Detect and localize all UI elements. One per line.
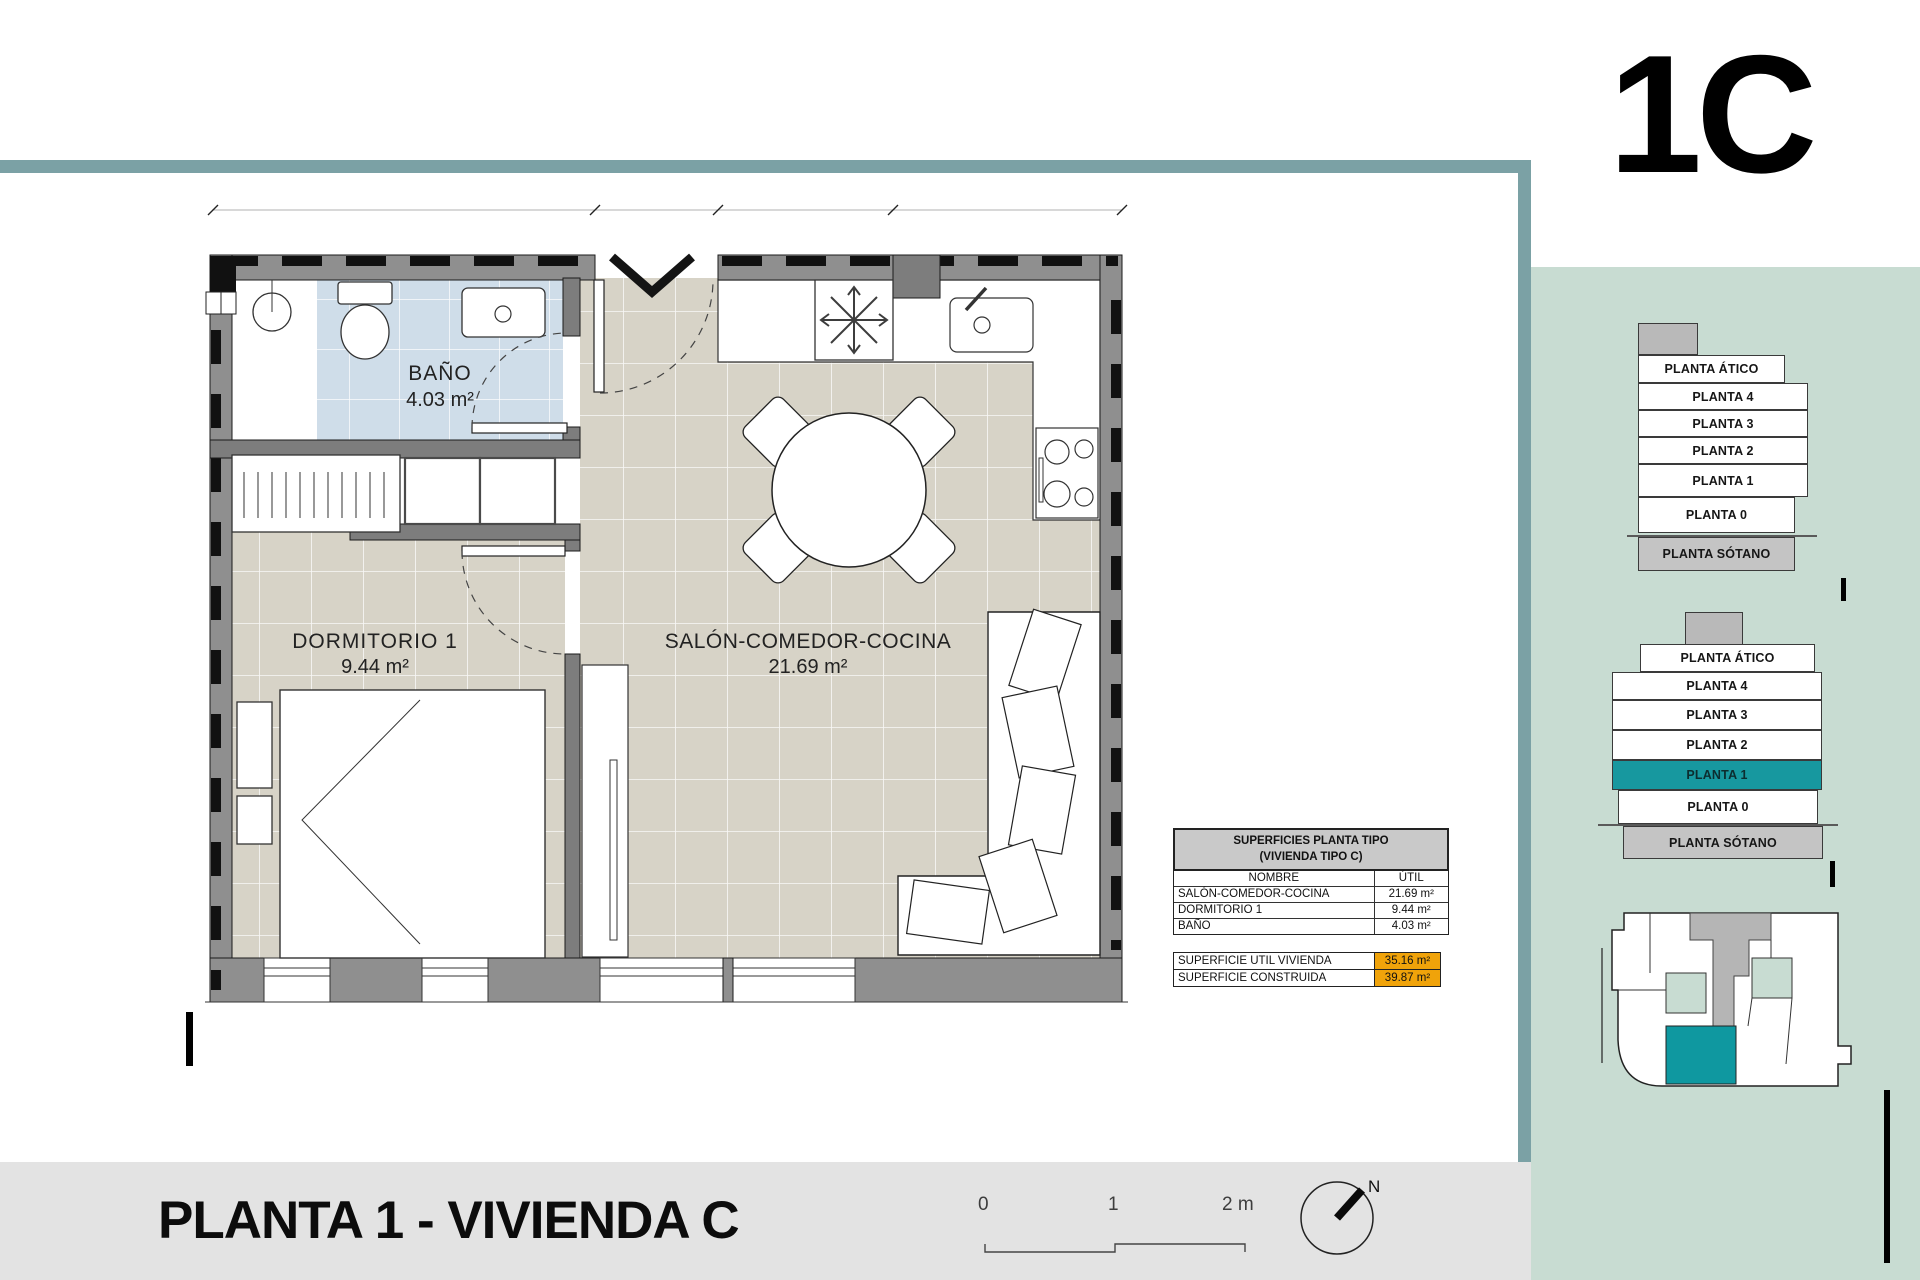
- bedroom-furniture: [237, 690, 545, 958]
- other-unit: [1666, 973, 1706, 1013]
- room-area-bano: 4.03 m²: [406, 389, 474, 411]
- stack2-level-3: PLANTA 3: [1612, 700, 1822, 730]
- total-name: SUPERFICIE CONSTRUIDA: [1173, 969, 1375, 987]
- col-header-util: ÚTIL: [1375, 871, 1448, 886]
- row-value: 9.44 m²: [1375, 902, 1448, 918]
- scale-label-1: 1: [1108, 1194, 1119, 1216]
- total-row: SUPERFICIE CONSTRUIDA 39.87 m²: [1173, 969, 1449, 987]
- row-value: 4.03 m²: [1375, 918, 1448, 934]
- frame-vertical-bar: [1518, 160, 1531, 1280]
- col-header-nombre: NOMBRE: [1174, 871, 1375, 886]
- stack1-level-0: PLANTA 0: [1638, 497, 1795, 533]
- tick-mark: [1830, 861, 1835, 887]
- stack2-level-sotano: PLANTA SÓTANO: [1623, 826, 1823, 859]
- surfaces-table-header: SUPERFICIES PLANTA TIPO (VIVIENDA TIPO C…: [1173, 828, 1449, 871]
- room-label-bano: BAÑO: [408, 361, 472, 385]
- stack1-level-atico: PLANTA ÁTICO: [1638, 355, 1785, 383]
- stack1-level-1: PLANTA 1: [1638, 464, 1808, 497]
- tick-mark: [1884, 1090, 1890, 1263]
- stack2-level-atico: PLANTA ÁTICO: [1640, 644, 1815, 672]
- compass-north-label: N: [1368, 1177, 1380, 1196]
- left-wall-window: [206, 292, 236, 314]
- stack1-level-4: PLANTA 4: [1638, 383, 1808, 410]
- stack2-level-2: PLANTA 2: [1612, 730, 1822, 760]
- closet: [232, 455, 555, 532]
- total-value: 35.16 m²: [1375, 952, 1441, 969]
- scale-label-2m: 2 m: [1222, 1194, 1254, 1216]
- surfaces-title-line1: SUPERFICIES PLANTA TIPO: [1175, 833, 1447, 849]
- toilet-icon: [338, 282, 392, 359]
- room-area-salon: 21.69 m²: [769, 656, 848, 678]
- stack2-level-4: PLANTA 4: [1612, 672, 1822, 700]
- washbasin-icon: [462, 288, 545, 337]
- total-name: SUPERFICIE UTIL VIVIENDA: [1173, 952, 1375, 969]
- scale-bar: [950, 1230, 1270, 1270]
- surfaces-grid: NOMBRE ÚTIL SALÓN-COMEDOR-COCINA 21.69 m…: [1173, 871, 1449, 935]
- corner-block: [210, 256, 236, 292]
- dining-set: [740, 394, 958, 586]
- nightstand: [237, 796, 272, 844]
- room-area-dormitorio: 9.44 m²: [341, 656, 409, 678]
- nightstand: [237, 702, 272, 788]
- row-name: SALÓN-COMEDOR-COCINA: [1174, 886, 1375, 902]
- stack1-roof: [1638, 323, 1698, 355]
- surfaces-table: SUPERFICIES PLANTA TIPO (VIVIENDA TIPO C…: [1173, 828, 1449, 987]
- storage-box: [480, 458, 555, 524]
- row-value: 21.69 m²: [1375, 886, 1448, 902]
- stack1-level-3: PLANTA 3: [1638, 410, 1808, 437]
- scale-label-0: 0: [978, 1194, 989, 1216]
- highlighted-unit: [1666, 1026, 1736, 1084]
- row-name: BAÑO: [1174, 918, 1375, 934]
- other-unit: [1752, 958, 1792, 998]
- tick-mark: [1841, 578, 1846, 601]
- stack1-level-sotano: PLANTA SÓTANO: [1638, 537, 1795, 571]
- room-label-salon: SALÓN-COMEDOR-COCINA: [665, 630, 952, 653]
- site-key-plan: [1575, 895, 1905, 1115]
- surfaces-totals: SUPERFICIE UTIL VIVIENDA 35.16 m² SUPERF…: [1173, 952, 1449, 987]
- frame-top-bar: [0, 160, 1531, 173]
- bed: [280, 690, 545, 958]
- row-name: DORMITORIO 1: [1174, 902, 1375, 918]
- storage-box: [405, 458, 480, 524]
- compass: N: [1293, 1172, 1413, 1272]
- total-row: SUPERFICIE UTIL VIVIENDA 35.16 m²: [1173, 952, 1449, 969]
- stack1-level-2: PLANTA 2: [1638, 437, 1808, 464]
- total-value: 39.87 m²: [1375, 969, 1441, 987]
- stack2-level-0: PLANTA 0: [1618, 790, 1818, 824]
- stack2-level-1-highlighted: PLANTA 1: [1612, 760, 1822, 790]
- plan-sheet: 1C: [0, 0, 1920, 1280]
- stack2-roof: [1685, 612, 1743, 645]
- kitchen-sink-icon: [950, 288, 1033, 352]
- surfaces-title-line2: (VIVIENDA TIPO C): [1175, 849, 1447, 865]
- window-mullion: [723, 958, 733, 1002]
- tv-unit: [582, 665, 628, 957]
- floor-plan: BAÑO 4.03 m² DORMITORIO 1 9.44 m² SALÓN-…: [170, 195, 1160, 1075]
- sheet-title: PLANTA 1 - VIVIENDA C: [158, 1190, 739, 1251]
- hob-icon: [1036, 428, 1098, 518]
- unit-code-label: 1C: [1545, 30, 1875, 198]
- room-label-dormitorio: DORMITORIO 1: [292, 630, 458, 653]
- table-row: BAÑO 4.03 m²: [1174, 918, 1448, 934]
- table-row: DORMITORIO 1 9.44 m²: [1174, 902, 1448, 918]
- compass-needle-icon: [1337, 1190, 1362, 1218]
- dining-table: [772, 413, 926, 567]
- table-row: SALÓN-COMEDOR-COCINA 21.69 m²: [1174, 886, 1448, 902]
